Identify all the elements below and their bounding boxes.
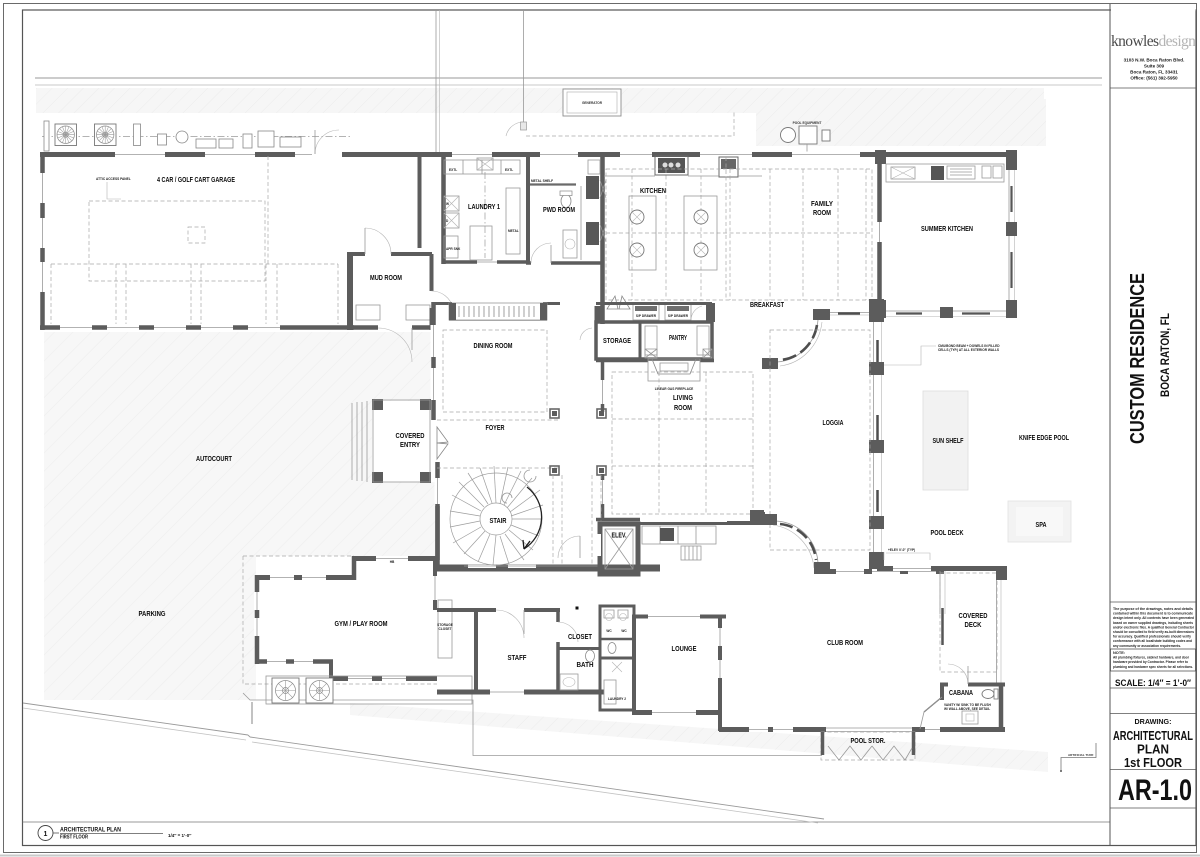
svg-text:ROOM: ROOM — [813, 210, 831, 217]
svg-text:knowlesdesign: knowlesdesign — [1111, 33, 1196, 50]
svg-text:LINEAR GAS FIREPLACE: LINEAR GAS FIREPLACE — [655, 387, 694, 391]
svg-text:CLOSET: CLOSET — [439, 627, 452, 631]
svg-text:DECK: DECK — [965, 622, 982, 629]
svg-text:ATTIC ACCESS PANEL: ATTIC ACCESS PANEL — [96, 177, 131, 181]
svg-text:FIRST FLOOR: FIRST FLOOR — [60, 835, 88, 841]
svg-text:STAFF: STAFF — [508, 655, 528, 662]
svg-text:1/4″ = 1’-0″: 1/4″ = 1’-0″ — [168, 833, 192, 838]
svg-text:COVERED: COVERED — [396, 433, 425, 440]
svg-text:+ELEV 0'-0" (TYP): +ELEV 0'-0" (TYP) — [888, 548, 915, 552]
svg-text:GENERATOR: GENERATOR — [582, 101, 603, 105]
svg-text:CELLS (TYP.) AT ALL EXTERIOR W: CELLS (TYP.) AT ALL EXTERIOR WALLS — [938, 348, 999, 352]
svg-text:METAL: METAL — [508, 229, 519, 233]
svg-text:STORAGE: STORAGE — [603, 338, 631, 345]
svg-text:COVERED: COVERED — [959, 613, 988, 620]
svg-text:Suite 309: Suite 309 — [1144, 64, 1165, 69]
svg-text:Office: (561) 392-5950: Office: (561) 392-5950 — [1130, 76, 1178, 81]
svg-text:ENTRY: ENTRY — [400, 442, 420, 449]
svg-text:DINING ROOM: DINING ROOM — [474, 343, 513, 350]
svg-text:WC: WC — [606, 629, 612, 633]
svg-text:W: W — [446, 202, 449, 206]
svg-text:SUMMER KITCHEN: SUMMER KITCHEN — [921, 226, 973, 233]
svg-text:METAL SHELF: METAL SHELF — [531, 179, 553, 183]
svg-text:3103 N.W. Boca Raton Blvd.: 3103 N.W. Boca Raton Blvd. — [1124, 58, 1185, 63]
svg-text:ELEV.: ELEV. — [612, 533, 627, 540]
svg-text:STAIR: STAIR — [490, 518, 507, 525]
svg-text:POOL STOR.: POOL STOR. — [851, 738, 886, 745]
svg-text:EXTL: EXTL — [505, 168, 513, 172]
svg-text:AR-1.0: AR-1.0 — [1118, 774, 1192, 807]
svg-text:SPA: SPA — [1036, 522, 1047, 529]
svg-text:APR SNK: APR SNK — [446, 247, 461, 251]
svg-text:Boca Raton, FL 33431: Boca Raton, FL 33431 — [1130, 70, 1178, 75]
svg-text:LAUNDRY 1: LAUNDRY 1 — [468, 204, 500, 211]
svg-text:POOL EQUIPMENT: POOL EQUIPMENT — [793, 121, 822, 125]
svg-text:AUTOCOURT: AUTOCOURT — [196, 456, 233, 463]
svg-text:S/P DRAWER: S/P DRAWER — [668, 314, 689, 318]
svg-text:MUD ROOM: MUD ROOM — [370, 275, 402, 282]
svg-text:CUSTOM RESIDENCE: CUSTOM RESIDENCE — [1126, 273, 1149, 444]
svg-text:W/ WALL ABOVE, SEE DETAIL: W/ WALL ABOVE, SEE DETAIL — [944, 707, 990, 711]
svg-text:LOGGIA: LOGGIA — [823, 420, 844, 427]
svg-text:plumbing and hardware spec she: plumbing and hardware spec sheets for al… — [1113, 664, 1193, 669]
svg-text:CABANA: CABANA — [949, 690, 973, 697]
svg-text:BATH: BATH — [577, 662, 594, 669]
svg-text:ARTIFICIAL TURF: ARTIFICIAL TURF — [1068, 753, 1094, 757]
svg-text:SCALE: 1/4″ = 1’-0″: SCALE: 1/4″ = 1’-0″ — [1115, 678, 1192, 688]
svg-text:BREAKFAST: BREAKFAST — [750, 302, 785, 309]
svg-text:DRAWING:: DRAWING: — [1135, 719, 1172, 726]
svg-text:SUN SHELF: SUN SHELF — [933, 438, 965, 445]
svg-text:S/P DRAWER: S/P DRAWER — [636, 314, 657, 318]
svg-text:PWD ROOM: PWD ROOM — [543, 207, 575, 214]
svg-text:CLOSET: CLOSET — [568, 634, 593, 641]
svg-text:1st FLOOR: 1st FLOOR — [1124, 755, 1183, 770]
svg-text:ROOM: ROOM — [674, 405, 692, 412]
svg-text:EXTL: EXTL — [449, 168, 457, 172]
svg-text:LIVING: LIVING — [673, 395, 693, 402]
svg-text:BOCA RATON, FL: BOCA RATON, FL — [1160, 313, 1172, 397]
svg-text:LAUNDRY 2: LAUNDRY 2 — [608, 697, 626, 701]
svg-text:LOUNGE: LOUNGE — [672, 646, 697, 653]
svg-text:1: 1 — [44, 831, 48, 838]
svg-text:4 CAR / GOLF CART GARAGE: 4 CAR / GOLF CART GARAGE — [157, 177, 235, 184]
svg-text:POOL DECK: POOL DECK — [931, 530, 964, 537]
svg-text:GYM / PLAY ROOM: GYM / PLAY ROOM — [335, 621, 388, 628]
svg-text:FAMILY: FAMILY — [811, 201, 833, 208]
svg-text:HB: HB — [390, 560, 395, 564]
svg-text:CLUB ROOM: CLUB ROOM — [827, 640, 863, 647]
svg-text:FOYER: FOYER — [486, 425, 505, 432]
svg-text:PANTRY: PANTRY — [669, 335, 687, 342]
svg-text:any community or association r: any community or association requirement… — [1113, 643, 1181, 648]
svg-text:PARKING: PARKING — [139, 611, 166, 618]
svg-text:KITCHEN: KITCHEN — [640, 188, 666, 195]
svg-text:KNIFE EDGE POOL: KNIFE EDGE POOL — [1019, 435, 1070, 442]
svg-text:WC: WC — [621, 629, 627, 633]
svg-text:ARCHITECTURAL PLAN: ARCHITECTURAL PLAN — [60, 827, 121, 834]
